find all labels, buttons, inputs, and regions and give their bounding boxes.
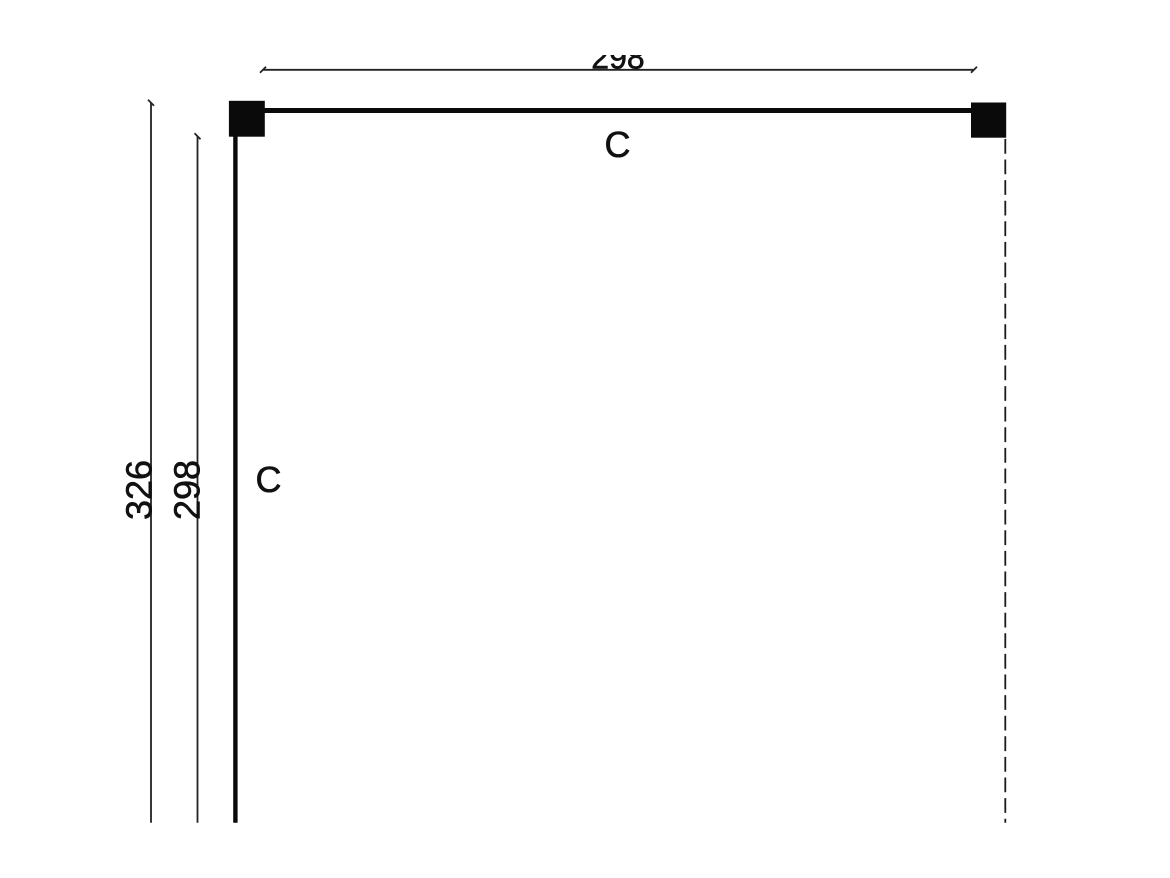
svg-text:298: 298 <box>167 460 208 520</box>
svg-text:C: C <box>605 124 631 165</box>
svg-text:326: 326 <box>119 460 160 520</box>
svg-text:C: C <box>256 459 282 500</box>
